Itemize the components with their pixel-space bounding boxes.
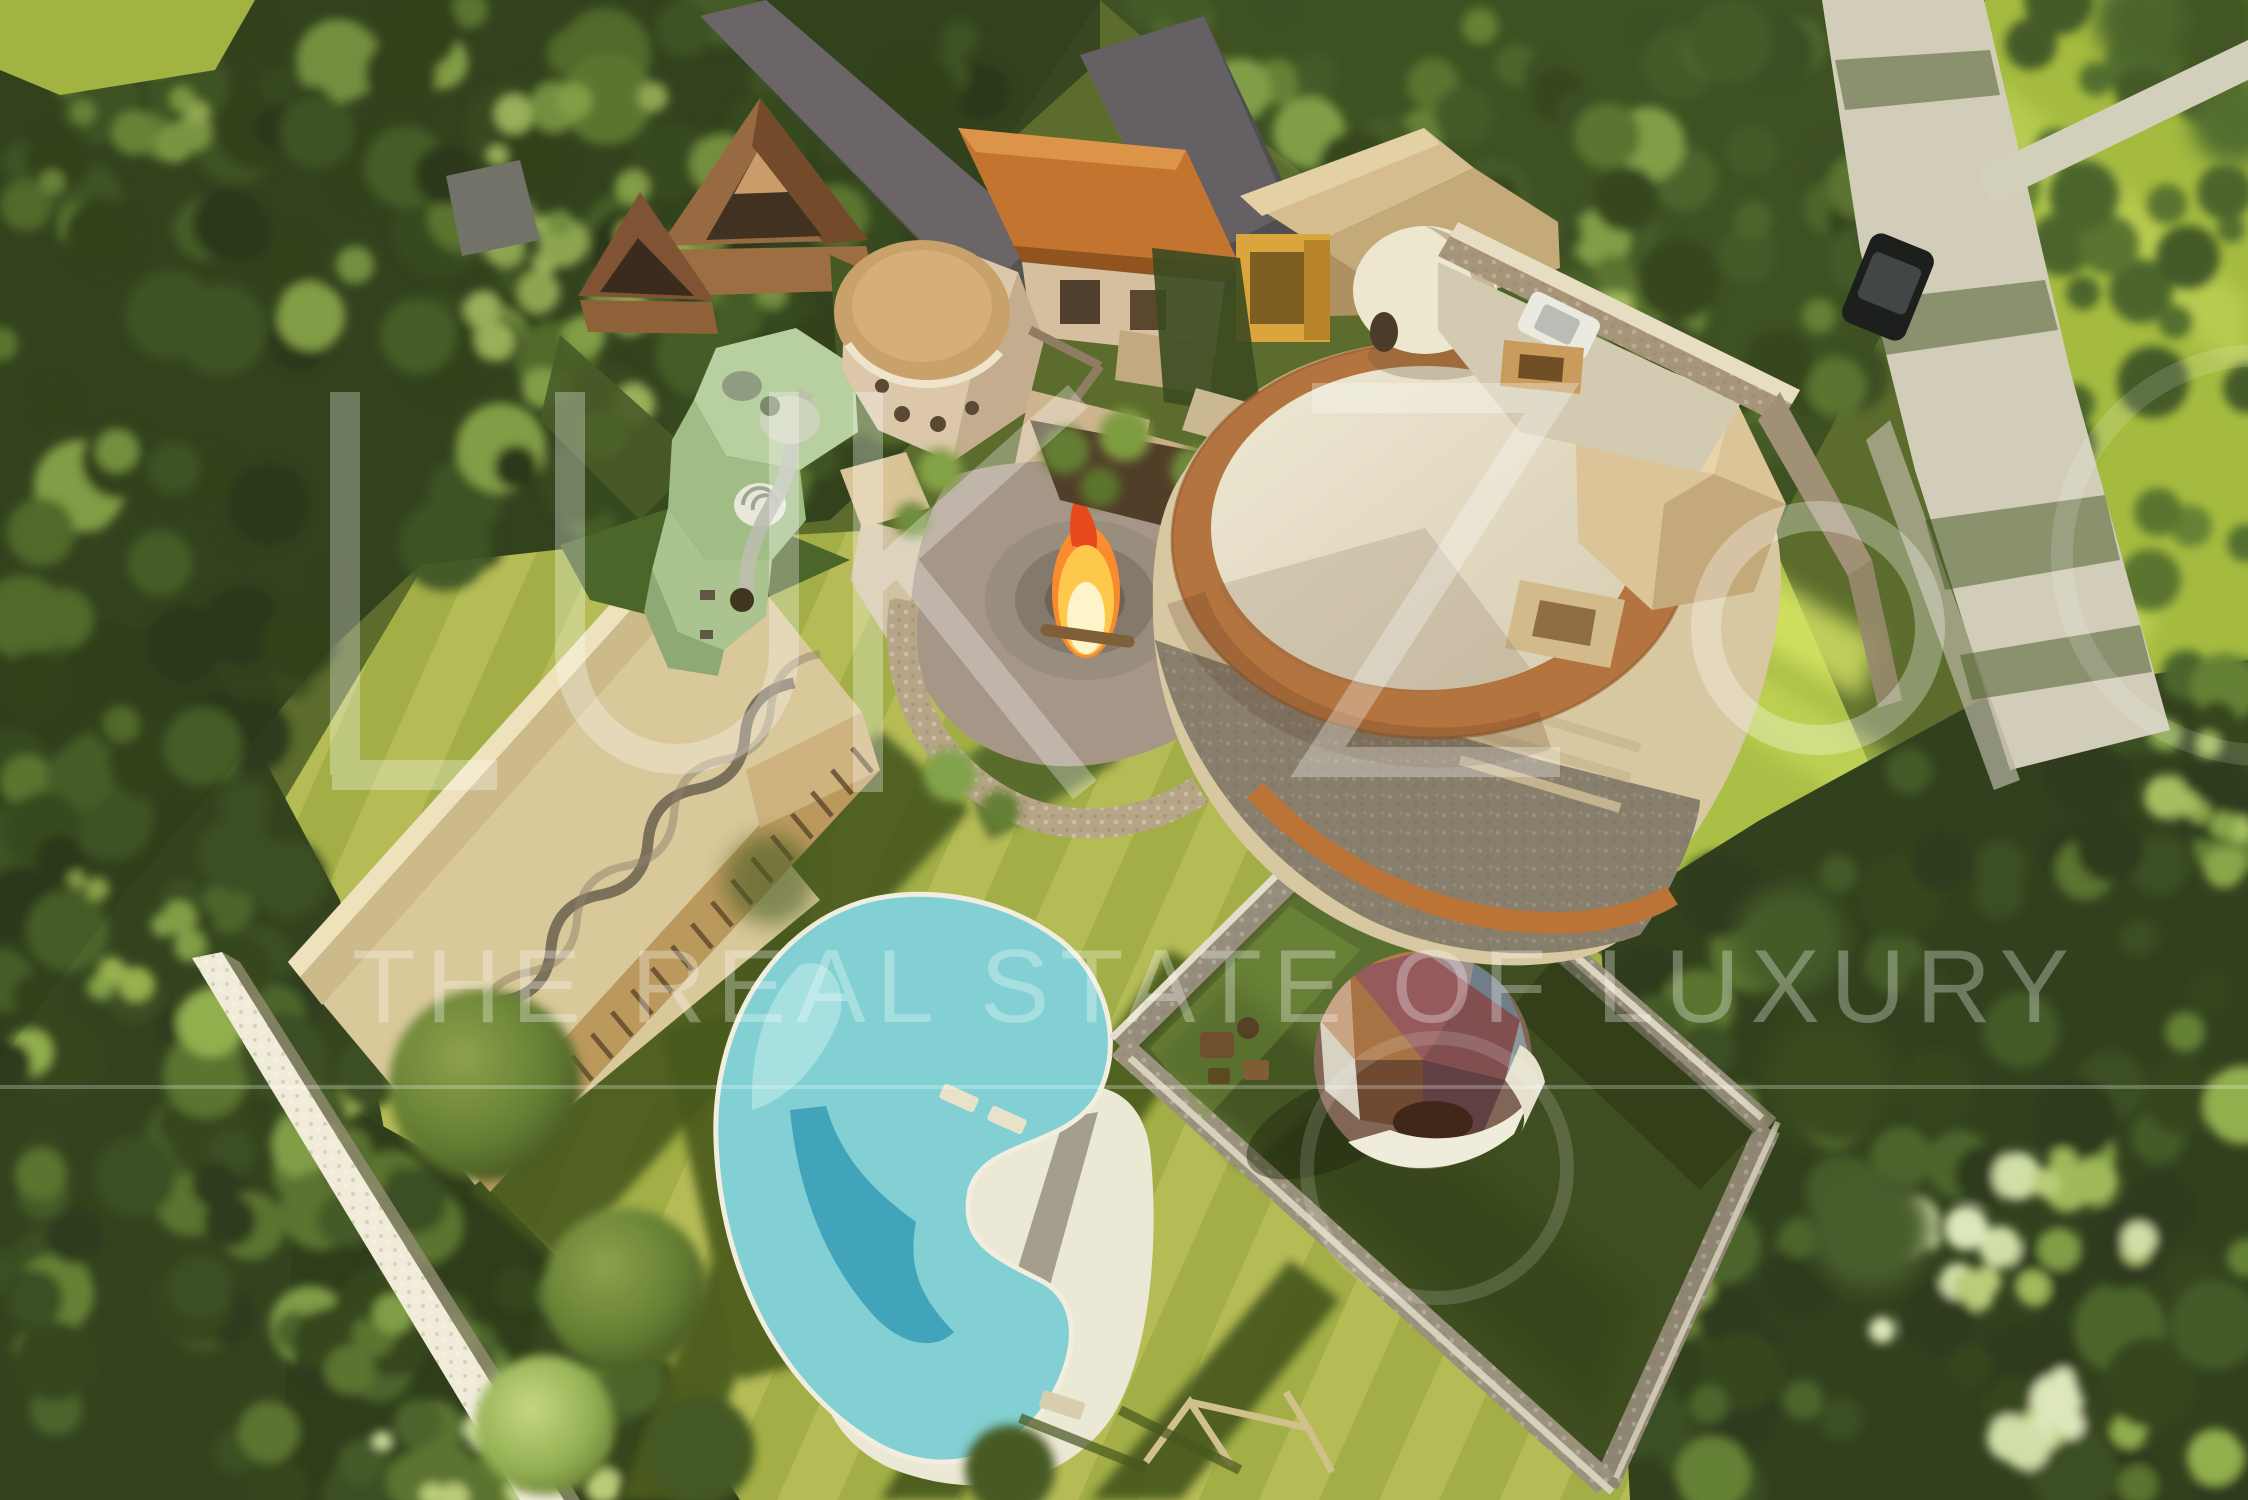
svg-text:THE REAL STATE OF LUXURY: THE REAL STATE OF LUXURY xyxy=(352,929,2080,1045)
